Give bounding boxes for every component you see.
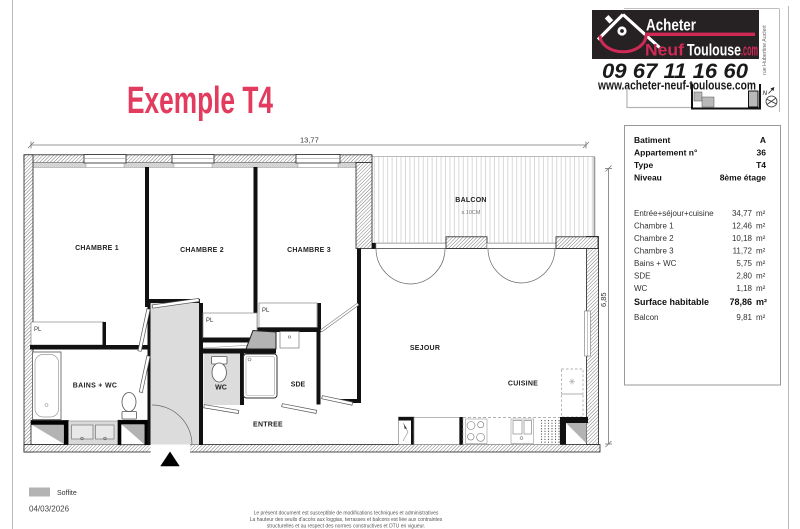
svg-text:2,80: 2,80 <box>736 272 752 281</box>
svg-text:Chambre 3: Chambre 3 <box>634 247 674 256</box>
svg-text:5,75: 5,75 <box>736 259 752 268</box>
svg-text:1,18: 1,18 <box>736 284 752 293</box>
svg-text:9,81: 9,81 <box>736 313 752 322</box>
svg-text:m²: m² <box>756 259 766 268</box>
svg-text:m²: m² <box>756 247 766 256</box>
svg-text:m²: m² <box>756 272 766 281</box>
svg-text:m²: m² <box>756 209 766 218</box>
svg-text:m²: m² <box>756 297 767 307</box>
svg-text:PL: PL <box>34 327 42 333</box>
svg-text:Entrée+séjour+cuisine: Entrée+séjour+cuisine <box>634 209 714 218</box>
svg-text:Bains + WC: Bains + WC <box>634 259 677 268</box>
svg-text:SEJOUR: SEJOUR <box>410 345 440 352</box>
svg-text:BAINS + WC: BAINS + WC <box>73 383 117 390</box>
svg-text:Exemple T4: Exemple T4 <box>127 80 273 122</box>
svg-text:T4: T4 <box>756 160 766 170</box>
svg-text:Le présent document est suscep: Le présent document est susceptible de m… <box>254 511 439 517</box>
svg-text:m²: m² <box>756 222 766 231</box>
svg-text:Chambre 1: Chambre 1 <box>634 222 674 231</box>
svg-text:m²: m² <box>756 234 766 243</box>
svg-text:Soffite: Soffite <box>57 490 77 497</box>
svg-text:Niveau: Niveau <box>634 173 662 183</box>
svg-text:Toulouse: Toulouse <box>687 42 741 60</box>
svg-text:10,18: 10,18 <box>732 234 753 243</box>
svg-text:CUISINE: CUISINE <box>508 381 538 388</box>
svg-text:Type: Type <box>634 160 653 170</box>
svg-text:CHAMBRE 3: CHAMBRE 3 <box>287 247 331 254</box>
svg-text:structurelles et au respect de: structurelles et au respect des normes c… <box>267 524 425 529</box>
svg-text:s.10CM: s.10CM <box>462 210 481 216</box>
svg-text:Chambre 2: Chambre 2 <box>634 234 674 243</box>
svg-text:ENTREE: ENTREE <box>253 422 283 429</box>
svg-text:WC: WC <box>634 284 648 293</box>
svg-text:78,86: 78,86 <box>729 297 752 307</box>
svg-text:La hauteur des seuils d'accès: La hauteur des seuils d'accès aux loggia… <box>250 517 443 523</box>
svg-text:m²: m² <box>756 284 766 293</box>
svg-text:04/03/2026: 04/03/2026 <box>29 505 70 514</box>
svg-text:PL: PL <box>206 318 214 324</box>
svg-text:8ème étage: 8ème étage <box>720 173 767 183</box>
svg-text:6,85: 6,85 <box>599 292 608 307</box>
svg-text:rue Hubertine Auclert: rue Hubertine Auclert <box>762 25 768 75</box>
svg-text:N: N <box>763 90 768 97</box>
svg-text:34,77: 34,77 <box>732 209 753 218</box>
svg-text:12,46: 12,46 <box>732 222 753 231</box>
svg-text:SDE: SDE <box>634 272 650 281</box>
svg-text:BALCON: BALCON <box>455 197 486 204</box>
svg-text:PL: PL <box>262 308 270 314</box>
svg-text:Balcon: Balcon <box>634 313 658 322</box>
svg-text:.com: .com <box>741 42 758 60</box>
svg-text:Acheter: Acheter <box>646 16 696 35</box>
svg-text:WC: WC <box>215 385 227 392</box>
svg-text:CHAMBRE 1: CHAMBRE 1 <box>75 245 119 252</box>
svg-text:Appartement n°: Appartement n° <box>634 148 698 158</box>
svg-text:Surface habitable: Surface habitable <box>634 297 709 307</box>
svg-text:13,77: 13,77 <box>300 136 319 145</box>
svg-text:SDE: SDE <box>291 382 306 389</box>
svg-text:CHAMBRE 2: CHAMBRE 2 <box>180 247 224 254</box>
svg-text:www.acheter-neuf-toulouse.com: www.acheter-neuf-toulouse.com <box>597 79 756 93</box>
svg-text:Neuf: Neuf <box>645 42 685 60</box>
svg-text:m²: m² <box>756 313 766 322</box>
svg-text:11,72: 11,72 <box>733 247 753 256</box>
svg-text:36: 36 <box>757 148 767 158</box>
svg-text:A: A <box>760 135 766 145</box>
svg-text:Batiment: Batiment <box>634 135 671 145</box>
